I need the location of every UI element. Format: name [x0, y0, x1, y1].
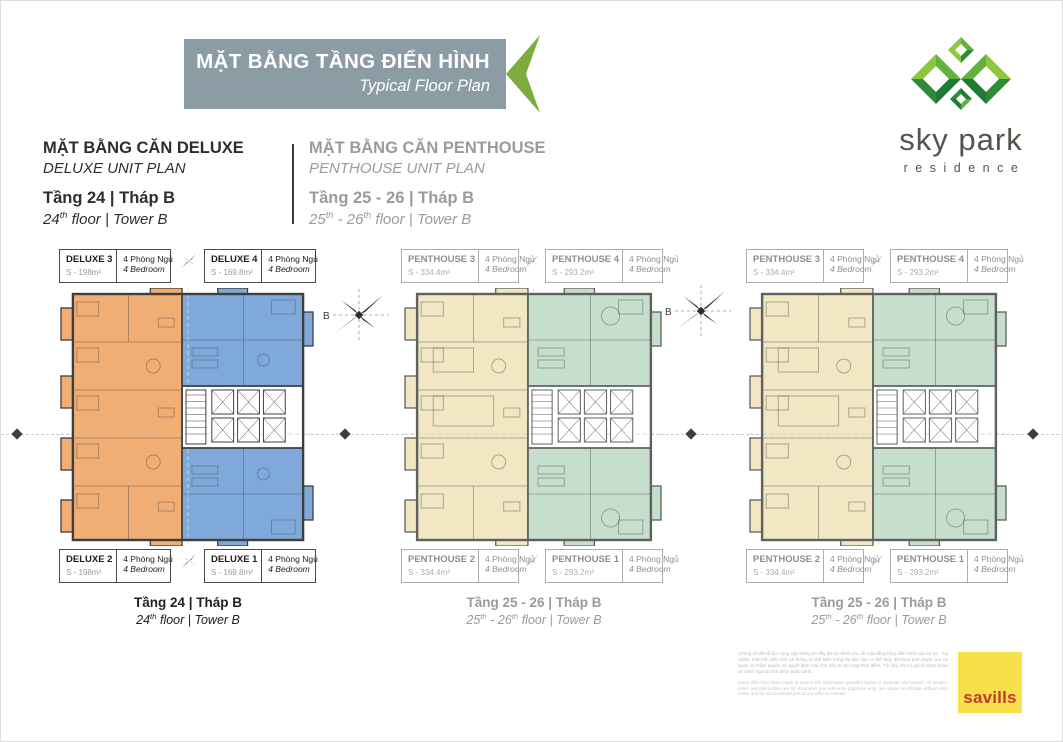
- plan-caption-penthouse-26: Tầng 25 - 26 | Tháp B 25th - 26th floor …: [748, 595, 1010, 627]
- caption-en: 24th floor | Tower B: [59, 612, 317, 627]
- unit-rooms-en: 4 Bedroom: [268, 264, 318, 274]
- unit-area: S - 334.4m²: [753, 568, 820, 577]
- unit-rooms-vi: 4 Phòng Ngủ: [485, 254, 535, 264]
- unit-label-deluxe-1: DELUXE 1 S - 169.8m² 4 Phòng Ngủ 4 Bedro…: [204, 549, 316, 583]
- unit-label-penthouse-2: PENTHOUSE 2 S - 334.4m² 4 Phòng Ngủ 4 Be…: [746, 549, 864, 583]
- north-arrow-icon: [181, 253, 197, 269]
- unit-rooms-en: 4 Bedroom: [830, 264, 880, 274]
- axis-marker: [1027, 428, 1038, 439]
- unit-label-penthouse-3: PENTHOUSE 3 S - 334.4m² 4 Phòng Ngủ 4 Be…: [401, 249, 519, 283]
- unit-rooms-vi: 4 Phòng Ngủ: [123, 554, 173, 564]
- brochure-page: MẶT BẰNG TẦNG ĐIỂN HÌNH Typical Floor Pl…: [0, 0, 1063, 742]
- unit-rooms-vi: 4 Phòng Ngủ: [629, 554, 679, 564]
- unit-area: S - 293.2m²: [897, 268, 964, 277]
- caption-vi: Tầng 25 - 26 | Tháp B: [748, 595, 1010, 610]
- brand-logo: sky park residence: [857, 27, 1063, 175]
- unit-rooms-vi: 4 Phòng Ngủ: [268, 554, 318, 564]
- svg-text:B: B: [665, 307, 672, 318]
- header-banner: MẶT BẰNG TẦNG ĐIỂN HÌNH Typical Floor Pl…: [184, 39, 506, 109]
- penthouse-title-en: PENTHOUSE UNIT PLAN: [309, 160, 564, 177]
- unit-label-penthouse-3: PENTHOUSE 3 S - 334.4m² 4 Phòng Ngủ 4 Be…: [746, 249, 864, 283]
- section-heading-deluxe: MẶT BẰNG CĂN DELUXE DELUXE UNIT PLAN Tần…: [43, 139, 298, 228]
- logo-subtitle: residence: [857, 161, 1063, 175]
- penthouse-title-vi: MẶT BẰNG CĂN PENTHOUSE: [309, 139, 564, 158]
- axis-marker: [685, 428, 696, 439]
- unit-area: S - 334.4m²: [408, 268, 475, 277]
- unit-area: S - 169.8m²: [211, 268, 258, 277]
- unit-label-penthouse-1: PENTHOUSE 1 S - 293.2m² 4 Phòng Ngủ 4 Be…: [890, 549, 1008, 583]
- disclaimer-text-vi: Chúng tôi đã nỗ lực cung cấp thông tin đ…: [738, 651, 948, 675]
- penthouse-floor-en: 25th - 26th floor | Tower B: [309, 210, 564, 228]
- unit-name: PENTHOUSE 1: [552, 554, 619, 565]
- unit-label-deluxe-2: DELUXE 2 S - 198m² 4 Phòng Ngủ 4 Bedroom: [59, 549, 171, 583]
- unit-area: S - 293.2m²: [552, 268, 619, 277]
- unit-rooms-vi: 4 Phòng Ngủ: [629, 254, 679, 264]
- disclaimer-block: Chúng tôi đã nỗ lực cung cấp thông tin đ…: [738, 651, 948, 697]
- unit-rooms-en: 4 Bedroom: [830, 564, 880, 574]
- unit-rooms-vi: 4 Phòng Ngủ: [974, 554, 1024, 564]
- unit-area: S - 293.2m²: [897, 568, 964, 577]
- unit-rooms-en: 4 Bedroom: [485, 564, 535, 574]
- unit-rooms-en: 4 Bedroom: [629, 264, 679, 274]
- unit-name: DELUXE 2: [66, 554, 113, 565]
- caption-vi: Tầng 25 - 26 | Tháp B: [403, 595, 665, 610]
- deluxe-title-vi: MẶT BẰNG CĂN DELUXE: [43, 139, 298, 158]
- page-subtitle: Typical Floor Plan: [184, 77, 490, 96]
- unit-rooms-vi: 4 Phòng Ngủ: [485, 554, 535, 564]
- deluxe-floor-vi: Tầng 24 | Tháp B: [43, 189, 298, 208]
- axis-marker: [339, 428, 350, 439]
- unit-name: PENTHOUSE 3: [408, 254, 475, 265]
- unit-rooms-vi: 4 Phòng Ngủ: [830, 554, 880, 564]
- axis-marker: [11, 428, 22, 439]
- unit-area: S - 334.4m²: [408, 568, 475, 577]
- caption-vi: Tầng 24 | Tháp B: [59, 595, 317, 610]
- deluxe-title-en: DELUXE UNIT PLAN: [43, 160, 298, 177]
- unit-rooms-vi: 4 Phòng Ngủ: [830, 254, 880, 264]
- deluxe-floor-en: 24th floor | Tower B: [43, 210, 298, 228]
- logo-wordmark: sky park: [857, 122, 1063, 158]
- plan-caption-deluxe: Tầng 24 | Tháp B 24th floor | Tower B: [59, 595, 317, 627]
- unit-name: PENTHOUSE 4: [552, 254, 619, 265]
- unit-rooms-vi: 4 Phòng Ngủ: [123, 254, 173, 264]
- disclaimer-text-en: Every effort has been made to ensure the…: [738, 680, 948, 697]
- banner-chevron-icon: [500, 35, 540, 113]
- penthouse-floor-vi: Tầng 25 - 26 | Tháp B: [309, 189, 564, 208]
- unit-label-penthouse-4: PENTHOUSE 4 S - 293.2m² 4 Phòng Ngủ 4 Be…: [545, 249, 663, 283]
- unit-rooms-en: 4 Bedroom: [974, 564, 1024, 574]
- north-arrow-icon: [181, 553, 197, 569]
- unit-label-deluxe-4: DELUXE 4 S - 169.8m² 4 Phòng Ngủ 4 Bedro…: [204, 249, 316, 283]
- unit-label-penthouse-1: PENTHOUSE 1 S - 293.2m² 4 Phòng Ngủ 4 Be…: [545, 549, 663, 583]
- floor-plan-penthouse-25-drawing: [403, 288, 665, 546]
- unit-rooms-vi: 4 Phòng Ngủ: [268, 254, 318, 264]
- savills-logo: savills: [958, 652, 1022, 713]
- unit-name: DELUXE 3: [66, 254, 113, 265]
- floor-plan-penthouse-26-drawing: [748, 288, 1010, 546]
- unit-rooms-en: 4 Bedroom: [974, 264, 1024, 274]
- unit-label-deluxe-3: DELUXE 3 S - 198m² 4 Phòng Ngủ 4 Bedroom: [59, 249, 171, 283]
- unit-area: S - 334.4m²: [753, 268, 820, 277]
- logo-diamonds-icon: [900, 27, 1022, 115]
- unit-name: DELUXE 4: [211, 254, 258, 265]
- unit-rooms-en: 4 Bedroom: [485, 264, 535, 274]
- unit-area: S - 198m²: [66, 268, 113, 277]
- unit-name: PENTHOUSE 4: [897, 254, 964, 265]
- unit-rooms-en: 4 Bedroom: [123, 264, 173, 274]
- unit-label-penthouse-4: PENTHOUSE 4 S - 293.2m² 4 Phòng Ngủ 4 Be…: [890, 249, 1008, 283]
- unit-name: PENTHOUSE 3: [753, 254, 820, 265]
- unit-name: PENTHOUSE 2: [753, 554, 820, 565]
- unit-name: PENTHOUSE 1: [897, 554, 964, 565]
- heading-divider: [292, 144, 294, 224]
- section-heading-penthouse: MẶT BẰNG CĂN PENTHOUSE PENTHOUSE UNIT PL…: [309, 139, 564, 228]
- svg-text:B: B: [323, 311, 330, 322]
- unit-area: S - 169.8m²: [211, 568, 258, 577]
- floor-plan-deluxe-drawing: [59, 288, 317, 546]
- page-title: MẶT BẰNG TẦNG ĐIỂN HÌNH: [184, 50, 490, 74]
- plan-caption-penthouse-25: Tầng 25 - 26 | Tháp B 25th - 26th floor …: [403, 595, 665, 627]
- unit-label-penthouse-2: PENTHOUSE 2 S - 334.4m² 4 Phòng Ngủ 4 Be…: [401, 549, 519, 583]
- caption-en: 25th - 26th floor | Tower B: [748, 612, 1010, 627]
- unit-rooms-en: 4 Bedroom: [268, 564, 318, 574]
- unit-rooms-en: 4 Bedroom: [123, 564, 173, 574]
- savills-wordmark: savills: [963, 688, 1016, 708]
- unit-name: DELUXE 1: [211, 554, 258, 565]
- caption-en: 25th - 26th floor | Tower B: [403, 612, 665, 627]
- unit-rooms-en: 4 Bedroom: [629, 564, 679, 574]
- unit-area: S - 293.2m²: [552, 568, 619, 577]
- compass-icon: B: [665, 285, 731, 337]
- compass-icon: B: [323, 289, 389, 341]
- unit-name: PENTHOUSE 2: [408, 554, 475, 565]
- unit-area: S - 198m²: [66, 568, 113, 577]
- unit-rooms-vi: 4 Phòng Ngủ: [974, 254, 1024, 264]
